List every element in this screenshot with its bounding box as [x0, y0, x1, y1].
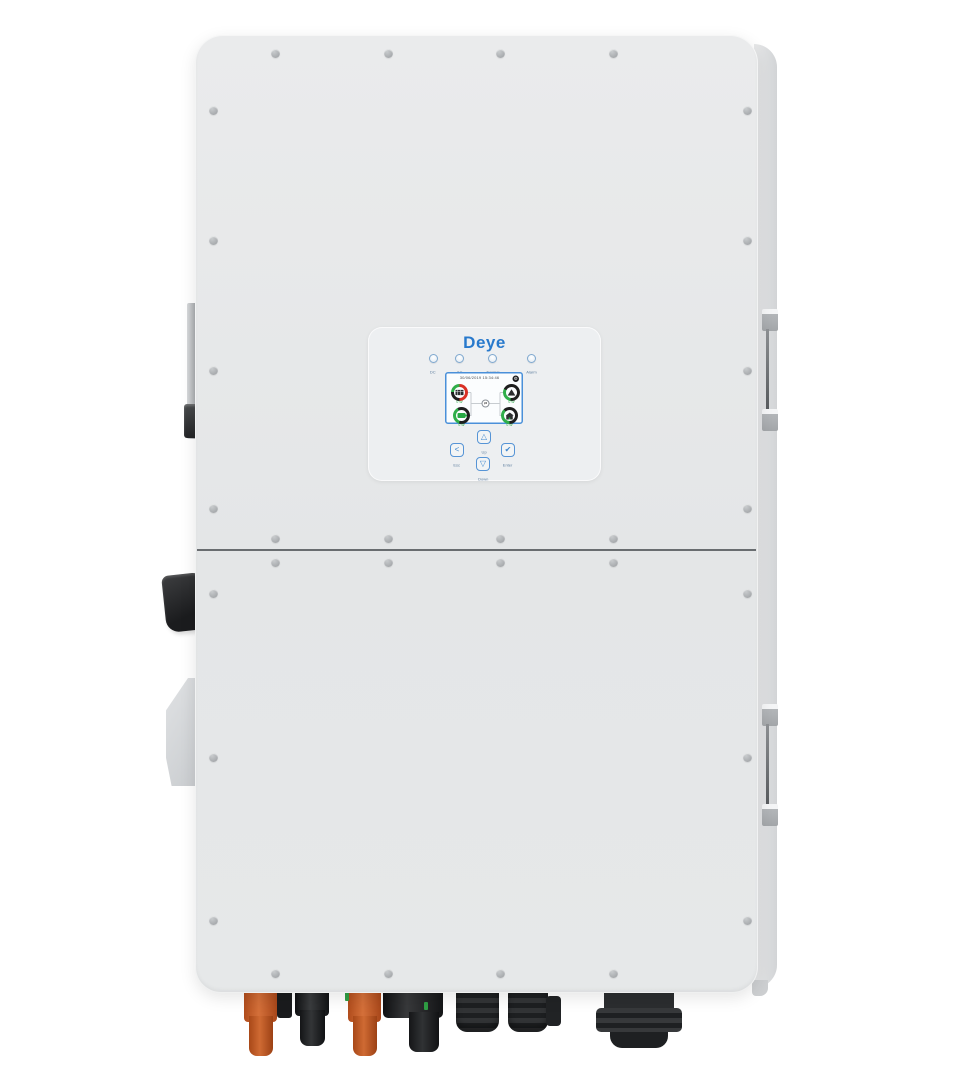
screw: [496, 969, 505, 978]
screw: [271, 969, 280, 978]
screw: [271, 534, 280, 543]
cable-gland-small-2: [508, 988, 548, 1032]
screw: [271, 49, 280, 58]
screw: [609, 534, 618, 543]
screw: [609, 558, 618, 567]
enter-button[interactable]: ✔: [501, 443, 515, 457]
panel-seam: [197, 549, 756, 551]
bottom-foot: [752, 980, 768, 996]
hinge-rod: [766, 329, 769, 413]
flow-line: [489, 403, 500, 404]
screw: [496, 49, 505, 58]
lcd-screen: 30/06/2019 15:34:46 ⚙ ⇄ 0 W 0 W: [445, 372, 523, 424]
led-label: Alarm: [526, 370, 536, 375]
led-alarm: Alarm: [521, 354, 542, 371]
wire-seal: [345, 992, 349, 1001]
led-light-icon: [527, 354, 536, 363]
screw: [609, 969, 618, 978]
screw: [743, 504, 752, 513]
pv-connector-orange-2: [348, 988, 381, 1056]
screw: [743, 366, 752, 375]
screw: [384, 534, 393, 543]
led-ac: AC: [454, 354, 465, 371]
up-button[interactable]: △: [477, 430, 491, 444]
screw: [384, 969, 393, 978]
grid-gauge: 0 W: [503, 384, 520, 401]
screw: [209, 504, 218, 513]
led-light-icon: [455, 354, 464, 363]
screw: [209, 106, 218, 115]
load-value: 0 W: [501, 424, 518, 428]
down-button[interactable]: ▽: [476, 457, 490, 471]
screw: [384, 49, 393, 58]
hinge-tab: [762, 309, 778, 331]
flow-line: [468, 392, 471, 393]
screw: [496, 534, 505, 543]
home-load-icon: [506, 416, 513, 420]
pv-value: 0 W: [451, 401, 468, 405]
screw: [209, 236, 218, 245]
esc-button-label: Esc: [454, 463, 461, 468]
hinge-tab: [762, 804, 778, 826]
screw: [209, 916, 218, 925]
hinge-tab: [762, 704, 778, 726]
settings-gear-icon[interactable]: ⚙: [513, 376, 520, 383]
brand-logo: Deye: [368, 333, 601, 353]
up-button-label: Up: [481, 450, 486, 455]
led-dc: DC: [427, 354, 439, 371]
esc-button[interactable]: <: [450, 443, 464, 457]
flow-line: [472, 403, 483, 404]
screen-timestamp: 30/06/2019 15:34:46: [447, 376, 513, 381]
load-gauge: 0 W: [501, 407, 518, 424]
wire-seal: [424, 1002, 428, 1010]
pv-connector-black-2: [383, 988, 443, 1052]
battery-gauge: 0 W: [453, 407, 470, 424]
screw: [209, 589, 218, 598]
power-flow-display: 30/06/2019 15:34:46 ⚙ ⇄ 0 W 0 W: [445, 372, 523, 424]
pv-gauge: 0 W: [451, 384, 468, 401]
led-indicators: DC AC Normal Alarm: [368, 354, 601, 371]
flow-line: [471, 393, 472, 417]
solar-panel-icon: [456, 390, 464, 396]
cable-gland-large: [596, 988, 682, 1048]
screw: [609, 49, 618, 58]
screw: [271, 558, 280, 567]
down-button-label: Down: [478, 477, 488, 482]
screw: [743, 589, 752, 598]
screw: [743, 916, 752, 925]
led-light-icon: [488, 354, 497, 363]
hinge-tab: [762, 409, 778, 431]
screw: [209, 753, 218, 762]
hinge-rod: [766, 724, 769, 808]
led-normal: Normal: [480, 354, 506, 371]
grid-value: 0 W: [503, 401, 520, 405]
screw: [743, 106, 752, 115]
cable-gland-small-1: [456, 988, 499, 1032]
battery-value: 0 W: [453, 424, 470, 428]
inverter-node-icon: ⇄: [482, 400, 490, 408]
led-label: DC: [430, 370, 436, 375]
screw: [743, 236, 752, 245]
inverter-body: [195, 35, 758, 993]
screw: [209, 366, 218, 375]
screw: [496, 558, 505, 567]
battery-icon: [458, 413, 466, 418]
led-light-icon: [429, 354, 438, 363]
enter-button-label: Enter: [503, 463, 513, 468]
pv-connector-black-1: [295, 988, 329, 1046]
screw: [743, 753, 752, 762]
screw: [384, 558, 393, 567]
pv-connector-orange-1: [244, 988, 277, 1056]
inverter-product-image: Deye DC AC Normal Alarm 30/06/2019 15:34…: [0, 0, 970, 1080]
